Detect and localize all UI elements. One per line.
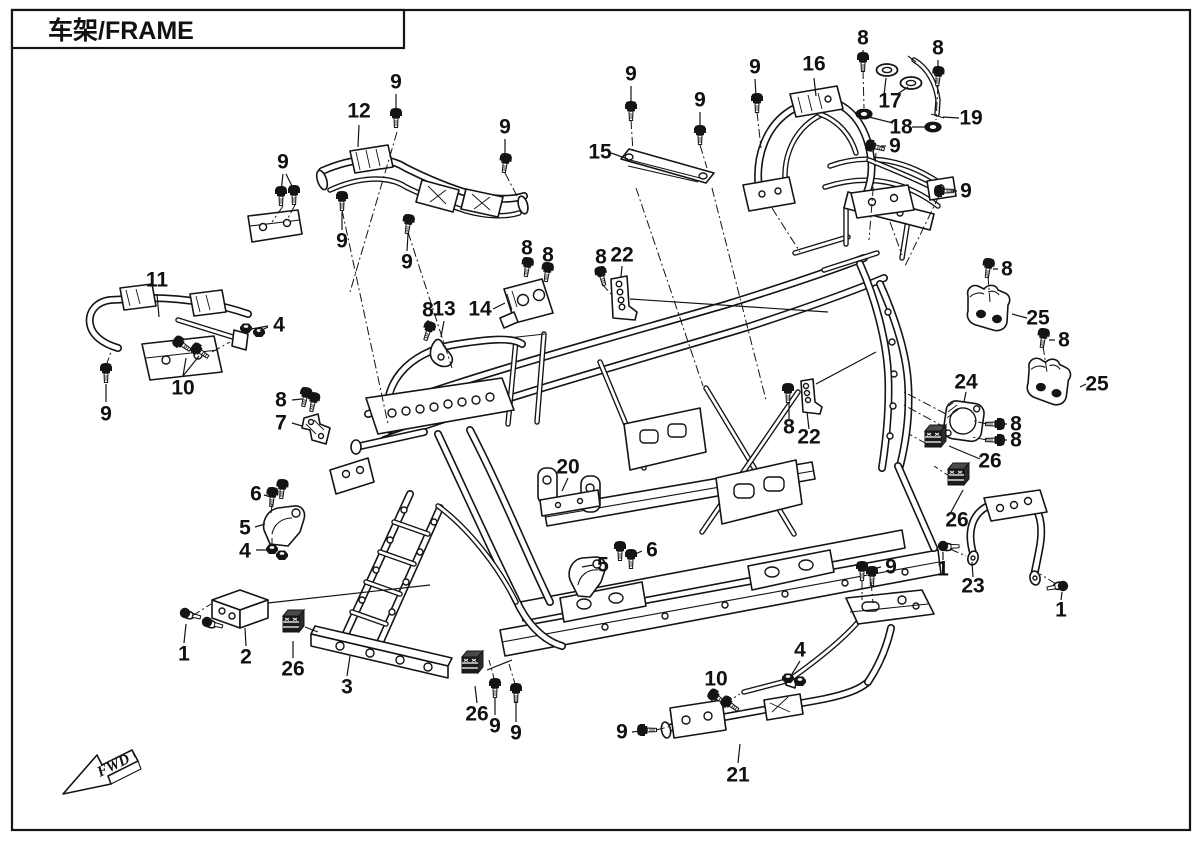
callout-6: 6 [646, 539, 658, 562]
callout-26: 26 [465, 703, 488, 726]
part-15-cross-plate [621, 149, 714, 183]
callout-8: 8 [857, 27, 869, 50]
callout-26: 26 [281, 658, 304, 681]
callout-4: 4 [794, 639, 806, 662]
callout-25: 25 [1085, 373, 1109, 396]
callout-1: 1 [1055, 599, 1067, 622]
callout-8: 8 [1001, 258, 1013, 281]
callout-8: 8 [932, 37, 944, 60]
fwd-direction-arrow: FWD [63, 750, 141, 794]
part-26-mount [283, 610, 304, 632]
part-7-bracket [302, 414, 330, 444]
callout-2: 2 [240, 646, 252, 669]
callout-1: 1 [937, 558, 949, 581]
callout-9: 9 [489, 715, 501, 738]
callout-10: 10 [704, 668, 727, 691]
callout-4: 4 [273, 314, 285, 337]
part-2-bracket [212, 590, 268, 628]
callout-8: 8 [783, 416, 795, 439]
callout-9: 9 [401, 251, 413, 274]
callout-17: 17 [878, 90, 901, 113]
parts-diagram-page: 车架/FRAME [0, 0, 1200, 841]
callout-9: 9 [100, 403, 112, 426]
callout-11: 11 [146, 269, 169, 292]
callout-9: 9 [749, 56, 761, 79]
callout-9: 9 [336, 230, 348, 253]
callout-22: 22 [610, 244, 633, 267]
callout-12: 12 [347, 100, 370, 123]
callout-5: 5 [239, 517, 251, 540]
callout-19: 19 [959, 107, 982, 130]
callout-9: 9 [616, 721, 628, 744]
callout-25: 25 [1026, 307, 1050, 330]
part-12-mount-bracket [248, 210, 302, 242]
callout-13: 13 [432, 298, 455, 321]
page-title: 车架/FRAME [48, 16, 194, 45]
callout-10: 10 [171, 377, 194, 400]
frame-exploded-diagram: 车架/FRAME [0, 0, 1200, 841]
callout-8: 8 [275, 389, 287, 412]
part-26-mount [462, 651, 483, 673]
part-5-bracket [264, 506, 305, 546]
callout-9: 9 [277, 151, 289, 174]
callout-1: 1 [178, 643, 190, 666]
callout-21: 21 [726, 764, 750, 787]
callout-7: 7 [275, 412, 287, 435]
part-26-mount [925, 425, 946, 447]
part-17-washer [877, 64, 898, 76]
part-24-flange [942, 400, 985, 443]
callout-9: 9 [510, 722, 522, 745]
part-14-bracket [500, 279, 553, 328]
callout-20: 20 [556, 456, 579, 479]
callout-8: 8 [595, 246, 607, 269]
part-26-mount [948, 463, 969, 485]
part-22-bracket [801, 379, 822, 414]
part-25-bracket [967, 285, 1009, 330]
callout-5: 5 [597, 554, 609, 577]
part-12-front-rack-support [315, 145, 530, 217]
callout-9: 9 [499, 116, 511, 139]
callout-8: 8 [1058, 329, 1070, 352]
part-25-bracket [1026, 358, 1071, 406]
callout-15: 15 [588, 141, 612, 164]
callout-4: 4 [239, 540, 251, 563]
part-22-bracket [611, 276, 637, 320]
callout-8: 8 [521, 237, 533, 260]
callout-24: 24 [954, 371, 978, 394]
callout-26: 26 [945, 509, 968, 532]
part-23-u-bracket [966, 490, 1047, 586]
callout-9: 9 [625, 63, 637, 86]
callout-6: 6 [250, 483, 262, 506]
callout-9: 9 [694, 89, 706, 112]
callout-26: 26 [978, 450, 1001, 473]
callout-8: 8 [1010, 429, 1022, 452]
part-11-front-bumper [90, 284, 248, 380]
callout-9: 9 [960, 180, 972, 203]
part-17-washer [901, 77, 922, 89]
callout-3: 3 [341, 676, 353, 699]
callout-9: 9 [889, 135, 901, 158]
callout-16: 16 [802, 53, 825, 76]
callout-8: 8 [542, 244, 554, 267]
callout-9: 9 [885, 556, 897, 579]
callout-23: 23 [961, 575, 984, 598]
callout-22: 22 [797, 426, 820, 449]
callout-9: 9 [390, 71, 402, 94]
callout-14: 14 [468, 298, 492, 321]
